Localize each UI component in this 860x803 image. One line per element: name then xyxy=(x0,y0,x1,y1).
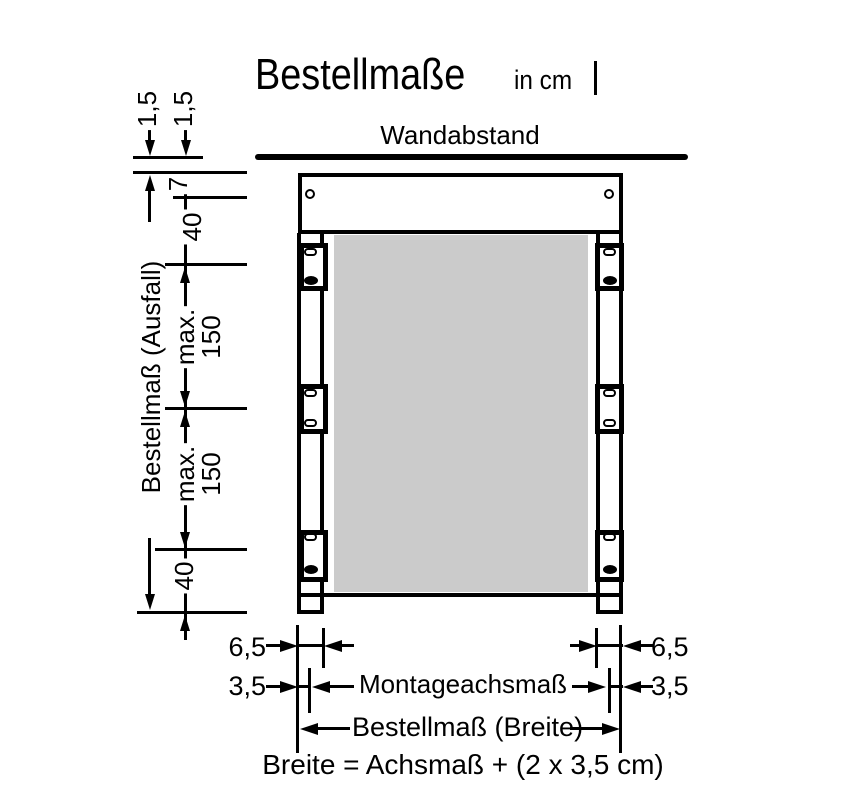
arrowhead-down xyxy=(180,391,190,407)
wall-distance-label: Wandabstand xyxy=(330,122,590,149)
arrowhead-right xyxy=(579,640,597,652)
arrowhead-right xyxy=(588,681,606,693)
width-formula: Breite = Achsmaß + (2 x 3,5 cm) xyxy=(233,750,693,779)
arrowhead-up xyxy=(145,175,155,191)
arrowhead-right xyxy=(280,681,298,693)
arrow-shaft xyxy=(266,644,280,647)
arrow-shaft xyxy=(148,538,151,595)
dim-label-axis-offset-right: 3,5 xyxy=(651,672,689,700)
dim-label-hole-offset: 7 xyxy=(164,174,192,194)
bracket-slot-filled xyxy=(304,276,318,285)
guide-rail-left-cap xyxy=(297,610,324,614)
dim-label-rail-width-left: 6,5 xyxy=(210,633,266,661)
bracket-slot-open xyxy=(603,533,616,541)
arrowhead-left xyxy=(623,681,641,693)
arrow-shaft xyxy=(318,727,350,730)
arrowhead-down xyxy=(145,140,155,156)
dim-line xyxy=(609,685,623,688)
dim-tick xyxy=(155,548,247,551)
fabric-panel xyxy=(334,235,588,592)
bracket-slot-filled xyxy=(603,565,617,574)
arrowhead-down xyxy=(181,140,191,156)
dim-line xyxy=(298,644,324,647)
dim-label-max150-1: max. 150 xyxy=(171,306,225,368)
dim-label-gap-wall: 1,5 xyxy=(133,88,161,130)
arrowhead-down xyxy=(180,532,190,548)
arrow-shaft xyxy=(570,644,579,647)
order-width-label: Bestellmaß (Breite) xyxy=(352,713,568,741)
dim-tick xyxy=(133,156,203,159)
arrowhead-right xyxy=(602,723,620,735)
arrowhead-left xyxy=(324,640,342,652)
arrow-shaft xyxy=(266,685,280,688)
cassette-screw-hole-left xyxy=(305,189,315,199)
title-text: Bestellmaße xyxy=(255,50,465,100)
dim-label-rail-width-right: 6,5 xyxy=(651,633,689,661)
dim-line xyxy=(597,644,623,647)
bracket-slot-filled xyxy=(603,276,617,285)
arrowhead-up xyxy=(180,267,190,283)
dim-tick xyxy=(158,263,247,266)
arrow-shaft xyxy=(572,685,588,688)
page-title[interactable]: Bestellmaße in cm xyxy=(255,50,597,100)
title-unit: in cm xyxy=(514,65,572,96)
bracket-slot-open xyxy=(603,419,616,427)
arrow-shaft xyxy=(570,727,602,730)
arrowhead-right xyxy=(280,640,298,652)
dim-label-max150-2: max. 150 xyxy=(171,443,225,505)
bracket-slot-open xyxy=(304,389,317,397)
mounting-axis-label: Montageachsmaß xyxy=(358,671,568,698)
arrowhead-left xyxy=(623,640,641,652)
arrowhead-down xyxy=(145,594,155,610)
dim-line xyxy=(298,685,310,688)
arrow-shaft xyxy=(330,685,354,688)
bracket-slot-open xyxy=(304,419,317,427)
arrowhead-up xyxy=(180,615,190,631)
arrowhead-left xyxy=(300,723,318,735)
dim-label-axis-offset-left: 3,5 xyxy=(210,672,266,700)
arrow-shaft xyxy=(342,644,354,647)
guide-rail-right-cap xyxy=(596,610,623,614)
bracket-slot-open xyxy=(304,248,317,256)
dim-tick xyxy=(155,407,247,410)
dim-label-gap-profile: 1,5 xyxy=(169,88,197,130)
arrowhead-up xyxy=(180,411,190,427)
ext-line-right-axis xyxy=(608,668,611,713)
ext-line-left-axis xyxy=(308,668,311,713)
drawing-canvas: Bestellmaße in cm Wandabstand xyxy=(0,0,860,803)
bracket-slot-open xyxy=(603,248,616,256)
bracket-slot-filled xyxy=(304,565,318,574)
dim-label-cassette-height: 40 xyxy=(178,210,206,245)
dim-label-bottom-offset: 40 xyxy=(170,559,198,594)
bracket-slot-open xyxy=(603,389,616,397)
dim-tick xyxy=(137,611,247,614)
arrowhead-left xyxy=(312,681,330,693)
bottom-slat-line xyxy=(297,593,623,597)
bracket-slot-open xyxy=(304,533,317,541)
text-cursor xyxy=(594,61,597,95)
cassette-box xyxy=(298,173,623,234)
dim-label-ausfall: Bestellmaß (Ausfall) xyxy=(137,258,165,497)
cassette-screw-hole-right xyxy=(604,189,614,199)
arrow-shaft xyxy=(148,191,151,222)
wall-line xyxy=(255,154,688,160)
